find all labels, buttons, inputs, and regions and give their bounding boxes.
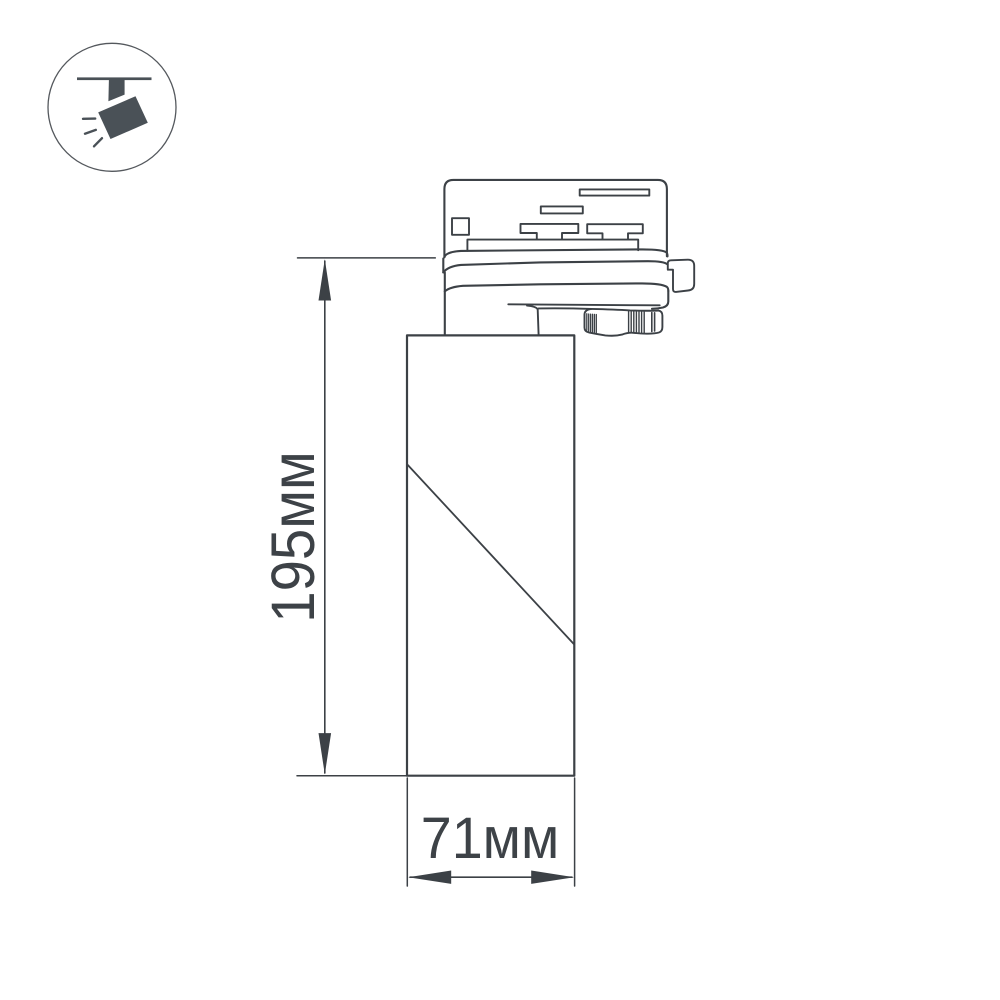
svg-text:195мм: 195мм	[259, 451, 327, 623]
svg-text:71мм: 71мм	[421, 806, 560, 871]
